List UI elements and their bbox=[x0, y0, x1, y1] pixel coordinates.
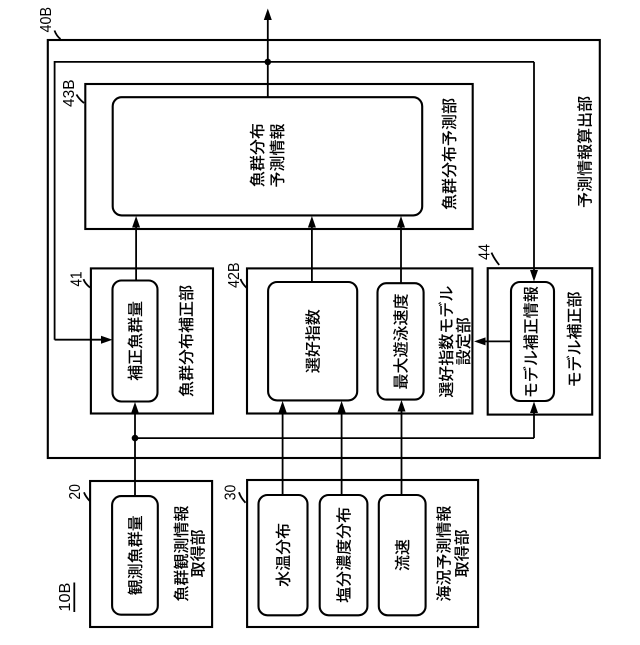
svg-text:43B: 43B bbox=[61, 80, 78, 108]
svg-text:30: 30 bbox=[222, 485, 239, 501]
svg-text:44: 44 bbox=[477, 244, 494, 260]
svg-text:42B: 42B bbox=[226, 263, 243, 289]
svg-text:41: 41 bbox=[69, 271, 86, 286]
svg-text:40B: 40B bbox=[38, 7, 55, 33]
svg-text:10B: 10B bbox=[57, 583, 74, 612]
svg-text:20: 20 bbox=[67, 484, 84, 500]
